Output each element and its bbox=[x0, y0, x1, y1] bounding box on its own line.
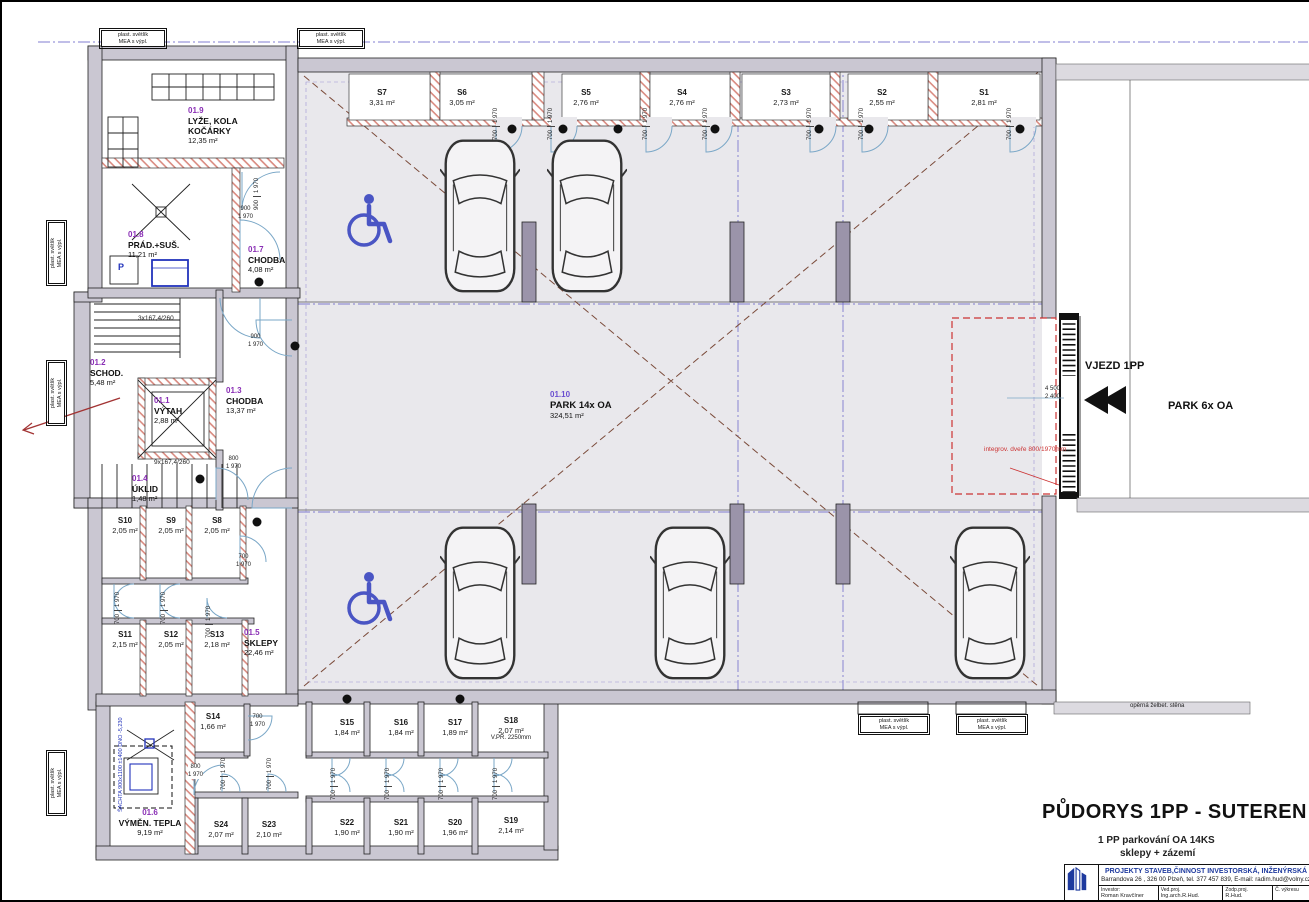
dim-height: 1 970 bbox=[115, 592, 121, 607]
outdoor-parking-label: PARK 6x OA bbox=[1168, 400, 1233, 412]
drawing-number-cell: Č. výkresu bbox=[1273, 886, 1309, 902]
cell-note: V.PŘ. 2250mm bbox=[480, 735, 542, 743]
dim-height: 2 400 bbox=[1026, 394, 1060, 402]
lead-designer-value: Ing.arch.R.Hud. bbox=[1161, 893, 1221, 899]
room-name: PRÁD.+SUŠ. bbox=[128, 240, 179, 250]
room-id: 01.8 bbox=[128, 230, 179, 240]
dim-width: 900 bbox=[254, 200, 260, 210]
cell-id: S7 bbox=[354, 88, 410, 98]
dim-width: 700 bbox=[267, 780, 273, 790]
cell-label-s11: S112,15 m² bbox=[102, 630, 148, 649]
room-label-park-14x: 01.10 PARK 14x OA 324,51 m² bbox=[550, 390, 612, 420]
cell-label-s5: S52,76 m² bbox=[558, 88, 614, 107]
dim-width: 700 bbox=[331, 790, 337, 800]
cell-area: 2,18 m² bbox=[194, 640, 240, 649]
cell-area: 2,15 m² bbox=[102, 640, 148, 649]
drawing-number-label: Č. výkresu bbox=[1275, 887, 1309, 893]
cell-area: 1,96 m² bbox=[430, 828, 480, 837]
dim-width: 700 bbox=[859, 130, 865, 140]
door-dim: 7001 970 bbox=[492, 108, 500, 140]
room-area: 11,21 m² bbox=[128, 250, 179, 259]
cell-area: 1,84 m² bbox=[322, 728, 372, 737]
room-label-vymen-tepla: 01.6 VÝMĚN. TEPLA 9,19 m² bbox=[102, 808, 198, 837]
car-icon bbox=[440, 528, 520, 678]
room-id: 01.10 bbox=[550, 390, 612, 400]
door-dim: 7001 970 bbox=[160, 592, 168, 624]
cell-id: S24 bbox=[198, 820, 244, 830]
dim-height: 1 970 bbox=[238, 214, 253, 222]
cell-id: S2 bbox=[854, 88, 910, 98]
cell-area: 2,10 m² bbox=[246, 830, 292, 839]
dim-width: 700 bbox=[493, 790, 499, 800]
room-id: 01.3 bbox=[226, 386, 263, 396]
dim-width: 700 bbox=[643, 130, 649, 140]
dim-height: 1 970 bbox=[807, 108, 813, 123]
cell-area: 2,05 m² bbox=[102, 526, 148, 535]
dim-height: 1 970 bbox=[161, 592, 167, 607]
driveway-lines bbox=[1054, 64, 1309, 714]
dim-height: 1 970 bbox=[221, 758, 227, 773]
cell-id: S15 bbox=[322, 718, 372, 728]
dim-height: 1 970 bbox=[206, 606, 212, 621]
door-dim: 7001 970 bbox=[702, 108, 710, 140]
room-name: VÝMĚN. TEPLA bbox=[119, 818, 182, 828]
cell-label-s14: S141,66 m² bbox=[188, 712, 238, 731]
room-area: 9,19 m² bbox=[137, 828, 162, 837]
cell-id: S9 bbox=[148, 516, 194, 526]
car-icon bbox=[440, 141, 520, 291]
cell-label-s16: S161,84 m² bbox=[376, 718, 426, 737]
cell-id: S5 bbox=[558, 88, 614, 98]
room-name: ÚKLID bbox=[132, 484, 158, 494]
retaining-wall-label: opěrná želbet. stěna bbox=[1130, 703, 1184, 709]
door-dim: 9001 970 bbox=[238, 206, 253, 221]
cell-label-s24: S242,07 m² bbox=[198, 820, 244, 839]
integrated-door-label: integrov. dveře 800/1970mm bbox=[984, 446, 1066, 453]
door-dim: 7001 970 bbox=[266, 758, 274, 790]
dim-width: 700 bbox=[206, 628, 212, 638]
light-well-stamp: plast. světlík MEA s výpl. bbox=[299, 30, 363, 47]
light-well-stamp: plast. světlík MEA s výpl. bbox=[48, 362, 65, 424]
light-well-stamp: plast. světlík MEA s výpl. bbox=[958, 716, 1026, 733]
cell-id: S12 bbox=[148, 630, 194, 640]
stair-note-lower: 9x167,4/260 bbox=[154, 459, 190, 466]
cell-id: S6 bbox=[434, 88, 490, 98]
dim-width: 800 bbox=[188, 764, 203, 772]
door-dim: 7001 970 bbox=[492, 768, 500, 800]
room-name: LYŽE, KOLA KOČÁRKY bbox=[188, 116, 238, 136]
cell-label-s13: S132,18 m² bbox=[194, 630, 240, 649]
company-name: PROJEKTY STAVEB,ČINNOST INVESTORSKÁ, INŽ… bbox=[1099, 865, 1309, 876]
cell-label-s10: S102,05 m² bbox=[102, 516, 148, 535]
floor-plan-sheet: 01.9 LYŽE, KOLA KOČÁRKY 12,35 m² 01.8 PR… bbox=[0, 0, 1309, 902]
room-label-chodba-01-7: 01.7 CHODBA 4,08 m² bbox=[248, 245, 285, 274]
door-dim: 7001 970 bbox=[858, 108, 866, 140]
dim-height: 1 970 bbox=[248, 342, 263, 350]
dim-height: 1 970 bbox=[1007, 108, 1013, 123]
cell-label-s23: S232,10 m² bbox=[246, 820, 292, 839]
light-well-stamp: plast. světlík MEA s výpl. bbox=[860, 716, 928, 733]
room-label-sklepy: 01.5 SKLEPY 22,46 m² bbox=[244, 628, 278, 657]
cell-id: S20 bbox=[430, 818, 480, 828]
cell-id: S14 bbox=[188, 712, 238, 722]
titleblock-main: PROJEKTY STAVEB,ČINNOST INVESTORSKÁ, INŽ… bbox=[1099, 865, 1309, 902]
door-dim: 9001 970 bbox=[248, 334, 263, 349]
dim-width: 800 bbox=[226, 456, 241, 464]
dim-height: 1 970 bbox=[226, 464, 241, 472]
light-well-stamp: plast. světlík MEA s výpl. bbox=[48, 752, 65, 814]
titleblock: PROJEKTY STAVEB,ČINNOST INVESTORSKÁ, INŽ… bbox=[1064, 864, 1309, 902]
cell-area: 2,05 m² bbox=[148, 640, 194, 649]
cell-label-s19: S192,14 m² bbox=[484, 816, 538, 835]
room-name: SCHOD. bbox=[90, 368, 123, 378]
dim-width: 700 bbox=[548, 130, 554, 140]
cell-id: S19 bbox=[484, 816, 538, 826]
cell-label-s9: S92,05 m² bbox=[148, 516, 194, 535]
dim-width: 700 bbox=[221, 780, 227, 790]
cell-label-s7: S73,31 m² bbox=[354, 88, 410, 107]
room-area: 1,48 m² bbox=[132, 494, 158, 503]
cell-area: 2,73 m² bbox=[758, 98, 814, 107]
door-dim: 7001 970 bbox=[384, 768, 392, 800]
dim-width: 900 bbox=[238, 206, 253, 214]
door-dim: 7001 970 bbox=[250, 714, 265, 729]
shaft-note: ŠACHTA 900x1100 ±1400 DNO -5,230 bbox=[118, 717, 124, 812]
cell-area: 2,07 m² bbox=[198, 830, 244, 839]
dim-width: 700 bbox=[439, 790, 445, 800]
stair-note-upper: 3x167,4/260 bbox=[138, 315, 174, 322]
cell-id: S1 bbox=[956, 88, 1012, 98]
room-id: 01.5 bbox=[244, 628, 278, 638]
dim-width: 700 bbox=[250, 714, 265, 722]
door-dim: 7001 970 bbox=[236, 554, 251, 569]
drawing-subtitle-1: 1 PP parkování OA 14KS bbox=[1098, 835, 1215, 846]
cell-id: S13 bbox=[194, 630, 240, 640]
dim-height: 1 970 bbox=[493, 108, 499, 123]
room-label-vytah: 01.1 VÝTAH 2,88 m² bbox=[154, 396, 182, 425]
door-dim: 7001 970 bbox=[642, 108, 650, 140]
room-area: 324,51 m² bbox=[550, 411, 612, 420]
room-label-chodba-01-3: 01.3 CHODBA 13,37 m² bbox=[226, 386, 263, 415]
room-name: CHODBA bbox=[248, 255, 285, 265]
dim-height: 1 970 bbox=[254, 178, 260, 193]
door-dim: 9001 970 bbox=[253, 178, 261, 210]
cell-label-s18: S182,07 m²V.PŘ. 2250mm bbox=[480, 716, 542, 743]
cell-label-s22: S221,90 m² bbox=[322, 818, 372, 837]
garage-door-dim: 4 500 2 400 bbox=[1026, 386, 1060, 401]
dim-width: 700 bbox=[493, 130, 499, 140]
cell-area: 2,05 m² bbox=[194, 526, 240, 535]
cell-label-s6: S63,05 m² bbox=[434, 88, 490, 107]
dim-height: 1 970 bbox=[703, 108, 709, 123]
dim-height: 1 970 bbox=[188, 772, 203, 780]
cell-area: 2,76 m² bbox=[654, 98, 710, 107]
room-area: 4,08 m² bbox=[248, 265, 285, 274]
cell-id: S8 bbox=[194, 516, 240, 526]
room-id: 01.1 bbox=[154, 396, 182, 406]
room-name: SKLEPY bbox=[244, 638, 278, 648]
washer-symbol-label: P bbox=[118, 262, 124, 272]
room-label-lyze-kola: 01.9 LYŽE, KOLA KOČÁRKY 12,35 m² bbox=[188, 106, 238, 145]
dim-width: 700 bbox=[385, 790, 391, 800]
door-dim: 7001 970 bbox=[220, 758, 228, 790]
cell-label-s17: S171,89 m² bbox=[430, 718, 480, 737]
room-name: PARK 14x OA bbox=[550, 400, 612, 411]
cell-area: 2,81 m² bbox=[956, 98, 1012, 107]
dim-height: 1 970 bbox=[236, 562, 251, 570]
room-area: 22,46 m² bbox=[244, 648, 278, 657]
dim-height: 1 970 bbox=[643, 108, 649, 123]
door-dim: 7001 970 bbox=[438, 768, 446, 800]
room-id: 01.9 bbox=[188, 106, 238, 116]
dim-height: 1 970 bbox=[493, 768, 499, 783]
dim-height: 1 970 bbox=[439, 768, 445, 783]
drawing-title: PŮDORYS 1PP - SUTEREN bbox=[1042, 801, 1307, 824]
door-dim: 7001 970 bbox=[806, 108, 814, 140]
dim-height: 1 970 bbox=[331, 768, 337, 783]
dim-width: 900 bbox=[248, 334, 263, 342]
cell-area: 1,89 m² bbox=[430, 728, 480, 737]
dim-height: 1 970 bbox=[250, 722, 265, 730]
cell-label-s15: S151,84 m² bbox=[322, 718, 372, 737]
cell-area: 3,05 m² bbox=[434, 98, 490, 107]
door-dim: 7001 970 bbox=[330, 768, 338, 800]
door-dim: 7001 970 bbox=[205, 606, 213, 638]
room-area: 2,88 m² bbox=[154, 416, 182, 425]
car-icon bbox=[950, 528, 1030, 678]
cell-area: 1,90 m² bbox=[322, 828, 372, 837]
cell-id: S16 bbox=[376, 718, 426, 728]
cell-label-s20: S201,96 m² bbox=[430, 818, 480, 837]
door-dim: 8001 970 bbox=[188, 764, 203, 779]
cell-area: 2,05 m² bbox=[148, 526, 194, 535]
cell-label-s12: S122,05 m² bbox=[148, 630, 194, 649]
cell-area: 2,55 m² bbox=[854, 98, 910, 107]
titleblock-row: Investor: Roman Kravčíner Ved.proj. Ing.… bbox=[1099, 886, 1309, 902]
responsible-designer-cell: Zodp.proj. R.Hud. bbox=[1223, 886, 1273, 902]
dim-width: 700 bbox=[1007, 130, 1013, 140]
light-well-stamp: plast. světlík MEA s výpl. bbox=[101, 30, 165, 47]
car-icon bbox=[547, 141, 627, 291]
cell-id: S18 bbox=[480, 716, 542, 726]
dim-height: 1 970 bbox=[267, 758, 273, 773]
cell-label-s1: S12,81 m² bbox=[956, 88, 1012, 107]
cell-area: 3,31 m² bbox=[354, 98, 410, 107]
room-label-prad-sus: 01.8 PRÁD.+SUŠ. 11,21 m² bbox=[128, 230, 179, 259]
cell-area: 2,14 m² bbox=[484, 826, 538, 835]
door-dim: 7001 970 bbox=[1006, 108, 1014, 140]
dim-height: 1 970 bbox=[385, 768, 391, 783]
entry-arrow-icon bbox=[1084, 386, 1126, 414]
door-dim: 8001 970 bbox=[226, 456, 241, 471]
room-id: 01.7 bbox=[248, 245, 285, 255]
responsible-designer-value: R.Hud. bbox=[1225, 893, 1270, 899]
cell-id: S22 bbox=[322, 818, 372, 828]
cell-area: 2,76 m² bbox=[558, 98, 614, 107]
room-name: CHODBA bbox=[226, 396, 263, 406]
lead-designer-cell: Ved.proj. Ing.arch.R.Hud. bbox=[1159, 886, 1224, 902]
cell-id: S10 bbox=[102, 516, 148, 526]
entry-label: VJEZD 1PP bbox=[1085, 360, 1144, 372]
room-label-uklid: 01.4 ÚKLID 1,48 m² bbox=[132, 474, 158, 503]
cell-area: 1,66 m² bbox=[188, 722, 238, 731]
cell-area: 1,84 m² bbox=[376, 728, 426, 737]
cell-label-s2: S22,55 m² bbox=[854, 88, 910, 107]
investor-cell: Investor: Roman Kravčíner bbox=[1099, 886, 1159, 902]
cell-label-s3: S32,73 m² bbox=[758, 88, 814, 107]
light-well-stamp: plast. světlík MEA s výpl. bbox=[48, 222, 65, 284]
cell-id: S17 bbox=[430, 718, 480, 728]
building-logo-icon bbox=[1065, 865, 1099, 902]
cell-area: 1,90 m² bbox=[376, 828, 426, 837]
cell-id: S11 bbox=[102, 630, 148, 640]
car-icon bbox=[650, 528, 730, 678]
cell-id: S4 bbox=[654, 88, 710, 98]
dim-width: 700 bbox=[703, 130, 709, 140]
cell-id: S3 bbox=[758, 88, 814, 98]
room-area: 5,48 m² bbox=[90, 378, 123, 387]
cell-label-s8: S82,05 m² bbox=[194, 516, 240, 535]
room-id: 01.6 bbox=[142, 808, 158, 818]
dim-height: 1 970 bbox=[548, 108, 554, 123]
dim-width: 700 bbox=[161, 614, 167, 624]
cell-label-s21: S211,90 m² bbox=[376, 818, 426, 837]
room-area: 13,37 m² bbox=[226, 406, 263, 415]
drawing-subtitle-2: sklepy + zázemí bbox=[1120, 848, 1195, 859]
room-name: VÝTAH bbox=[154, 406, 182, 416]
room-label-schod: 01.2 SCHOD. 5,48 m² bbox=[90, 358, 123, 387]
room-area: 12,35 m² bbox=[188, 136, 238, 145]
cell-label-s4: S42,76 m² bbox=[654, 88, 710, 107]
door-dim: 7001 970 bbox=[547, 108, 555, 140]
dim-height: 1 970 bbox=[859, 108, 865, 123]
company-address: Barrandova 26 , 326 00 Plzeň, tel. 377 4… bbox=[1099, 876, 1309, 886]
cell-id: S21 bbox=[376, 818, 426, 828]
investor-value: Roman Kravčíner bbox=[1101, 893, 1156, 899]
door-dim: 7001 970 bbox=[114, 592, 122, 624]
room-id: 01.4 bbox=[132, 474, 158, 484]
dim-width: 700 bbox=[115, 614, 121, 624]
dim-width: 700 bbox=[807, 130, 813, 140]
room-id: 01.2 bbox=[90, 358, 123, 368]
dim-width: 700 bbox=[236, 554, 251, 562]
cell-area: 2,07 m² bbox=[480, 726, 542, 735]
dim-width: 4 500 bbox=[1026, 386, 1060, 394]
cell-id: S23 bbox=[246, 820, 292, 830]
